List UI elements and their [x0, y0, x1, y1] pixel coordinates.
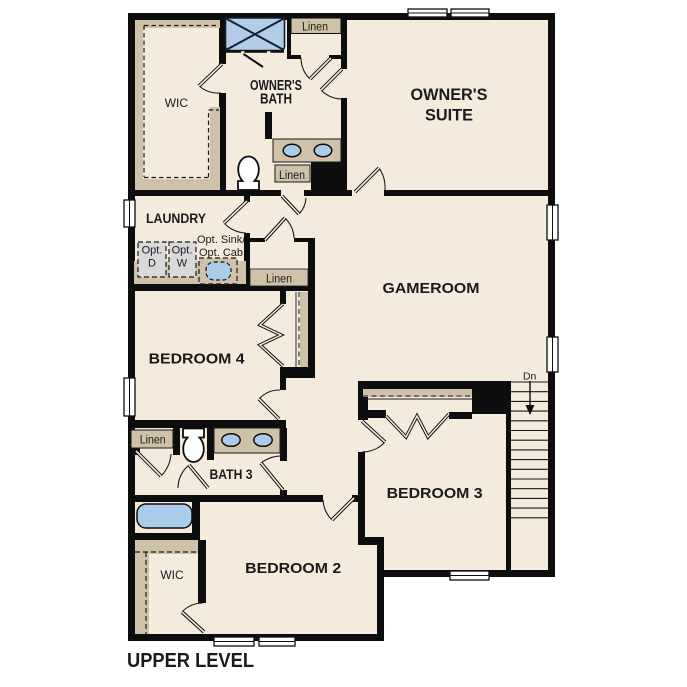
svg-text:OWNER'S: OWNER'S — [411, 86, 488, 104]
svg-text:BEDROOM 3: BEDROOM 3 — [387, 485, 483, 502]
svg-text:Dn: Dn — [523, 371, 537, 383]
svg-text:Opt. Cab: Opt. Cab — [199, 247, 243, 259]
svg-text:Linen: Linen — [302, 22, 328, 34]
svg-text:Linen: Linen — [279, 170, 305, 182]
svg-text:BATH 3: BATH 3 — [210, 466, 253, 482]
svg-text:SUITE: SUITE — [425, 107, 473, 125]
svg-text:Linen: Linen — [140, 435, 166, 447]
svg-text:GAMEROOM: GAMEROOM — [383, 280, 480, 297]
svg-text:BATH: BATH — [260, 91, 292, 108]
svg-text:Opt.: Opt. — [172, 245, 193, 257]
svg-text:Opt.: Opt. — [142, 245, 163, 257]
svg-text:BEDROOM 2: BEDROOM 2 — [245, 560, 341, 577]
svg-text:WIC: WIC — [165, 96, 189, 110]
svg-text:D: D — [148, 258, 156, 270]
svg-text:LAUNDRY: LAUNDRY — [146, 211, 206, 226]
svg-text:WIC: WIC — [160, 568, 184, 582]
svg-text:Opt. Sink/: Opt. Sink/ — [197, 234, 246, 246]
svg-text:BEDROOM 4: BEDROOM 4 — [149, 351, 246, 368]
svg-text:W: W — [177, 258, 188, 270]
svg-text:Linen: Linen — [266, 274, 292, 286]
svg-text:UPPER LEVEL: UPPER LEVEL — [127, 650, 254, 672]
